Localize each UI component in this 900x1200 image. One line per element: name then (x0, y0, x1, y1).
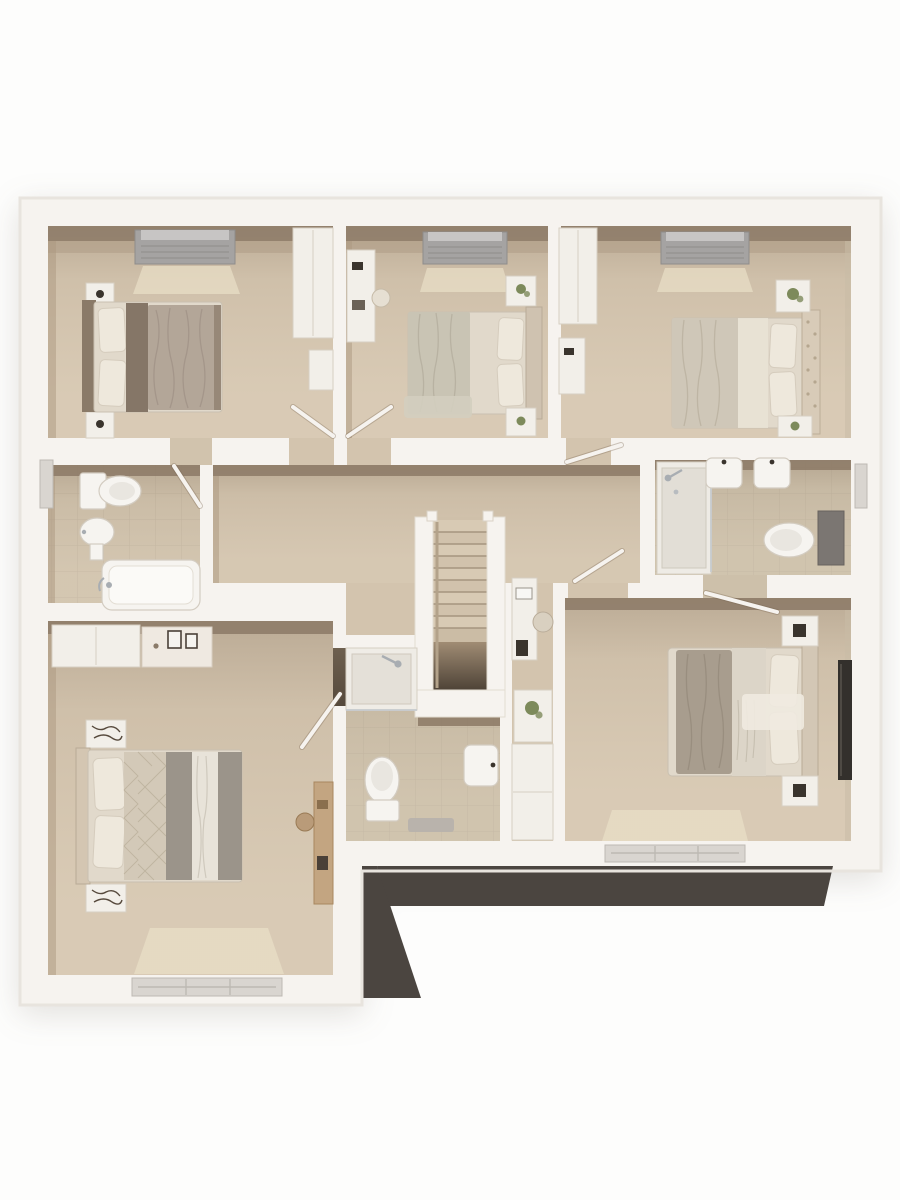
headboard (526, 307, 542, 419)
bath-mat (408, 818, 454, 832)
chair (296, 813, 314, 831)
double-bed (404, 307, 542, 419)
nightstand-lamp-top (782, 616, 818, 646)
shower-enclosure (657, 462, 711, 574)
quilted-throw (124, 752, 166, 880)
wall-basin-right (754, 458, 790, 488)
shower-enclosure (346, 648, 417, 710)
en-suite-window (855, 464, 867, 508)
nightstand-lamp-bottom (782, 776, 818, 806)
picture-frame (168, 631, 181, 648)
double-bed (668, 643, 818, 781)
staircase (415, 511, 505, 717)
bed-runner (126, 303, 148, 412)
bedroom-1-window (133, 230, 240, 294)
lower-roof-band (362, 866, 833, 998)
landing-furniture (512, 578, 553, 840)
bedroom-1-doorway (289, 438, 334, 465)
tufted-headboard (802, 310, 820, 434)
nightstand-plant-top (776, 280, 810, 312)
dresser-with-frames (142, 627, 212, 667)
stair-treads (433, 520, 487, 642)
bedroom-3-window (657, 232, 753, 292)
cistern-panel (818, 511, 844, 565)
duvet (672, 318, 738, 428)
bedroom-2-doorway (347, 438, 391, 465)
newel-post-right (483, 511, 493, 521)
toilet (365, 757, 399, 821)
patterned-nightstand-bottom (86, 884, 126, 912)
toilet (80, 473, 141, 509)
bathtub (99, 560, 200, 610)
bedroom-5-doorway (568, 583, 628, 598)
newel-post-left (427, 511, 437, 521)
sheet-fold (738, 318, 768, 428)
bedroom-2-window (420, 232, 510, 292)
family-bathroom-window (40, 460, 53, 508)
patterned-nightstand-top (86, 720, 126, 748)
desk-chair (533, 612, 553, 632)
cabinet (309, 350, 333, 390)
nightstand-plant-bottom (778, 416, 812, 437)
tablet (516, 640, 528, 656)
picture-frame (186, 634, 197, 648)
cabinet-nook (512, 690, 553, 840)
double-bed (672, 310, 820, 434)
double-bed (82, 300, 222, 412)
stair-lower-flight (433, 642, 487, 690)
throw-drape (404, 396, 472, 418)
desk-chair (372, 289, 390, 307)
nightstand-plant-bottom (506, 408, 536, 436)
family-bathroom-doorway (170, 438, 212, 465)
wall-basin-left (706, 458, 742, 488)
floor-plan-page (0, 0, 900, 1200)
laptop (516, 588, 532, 599)
gray-band (166, 752, 192, 880)
tv-panel (838, 660, 852, 780)
floor-plan-render (0, 0, 900, 1200)
bedroom-5-window (602, 810, 748, 862)
headboard (802, 643, 818, 781)
double-bed (76, 748, 242, 884)
bedroom-4-window (132, 928, 284, 996)
center-pillow (742, 694, 804, 730)
side-desk (559, 338, 585, 394)
wall-basin (464, 745, 498, 786)
nightstand-lamp-bottom (86, 412, 114, 438)
nightstand-plant-top (506, 276, 536, 306)
